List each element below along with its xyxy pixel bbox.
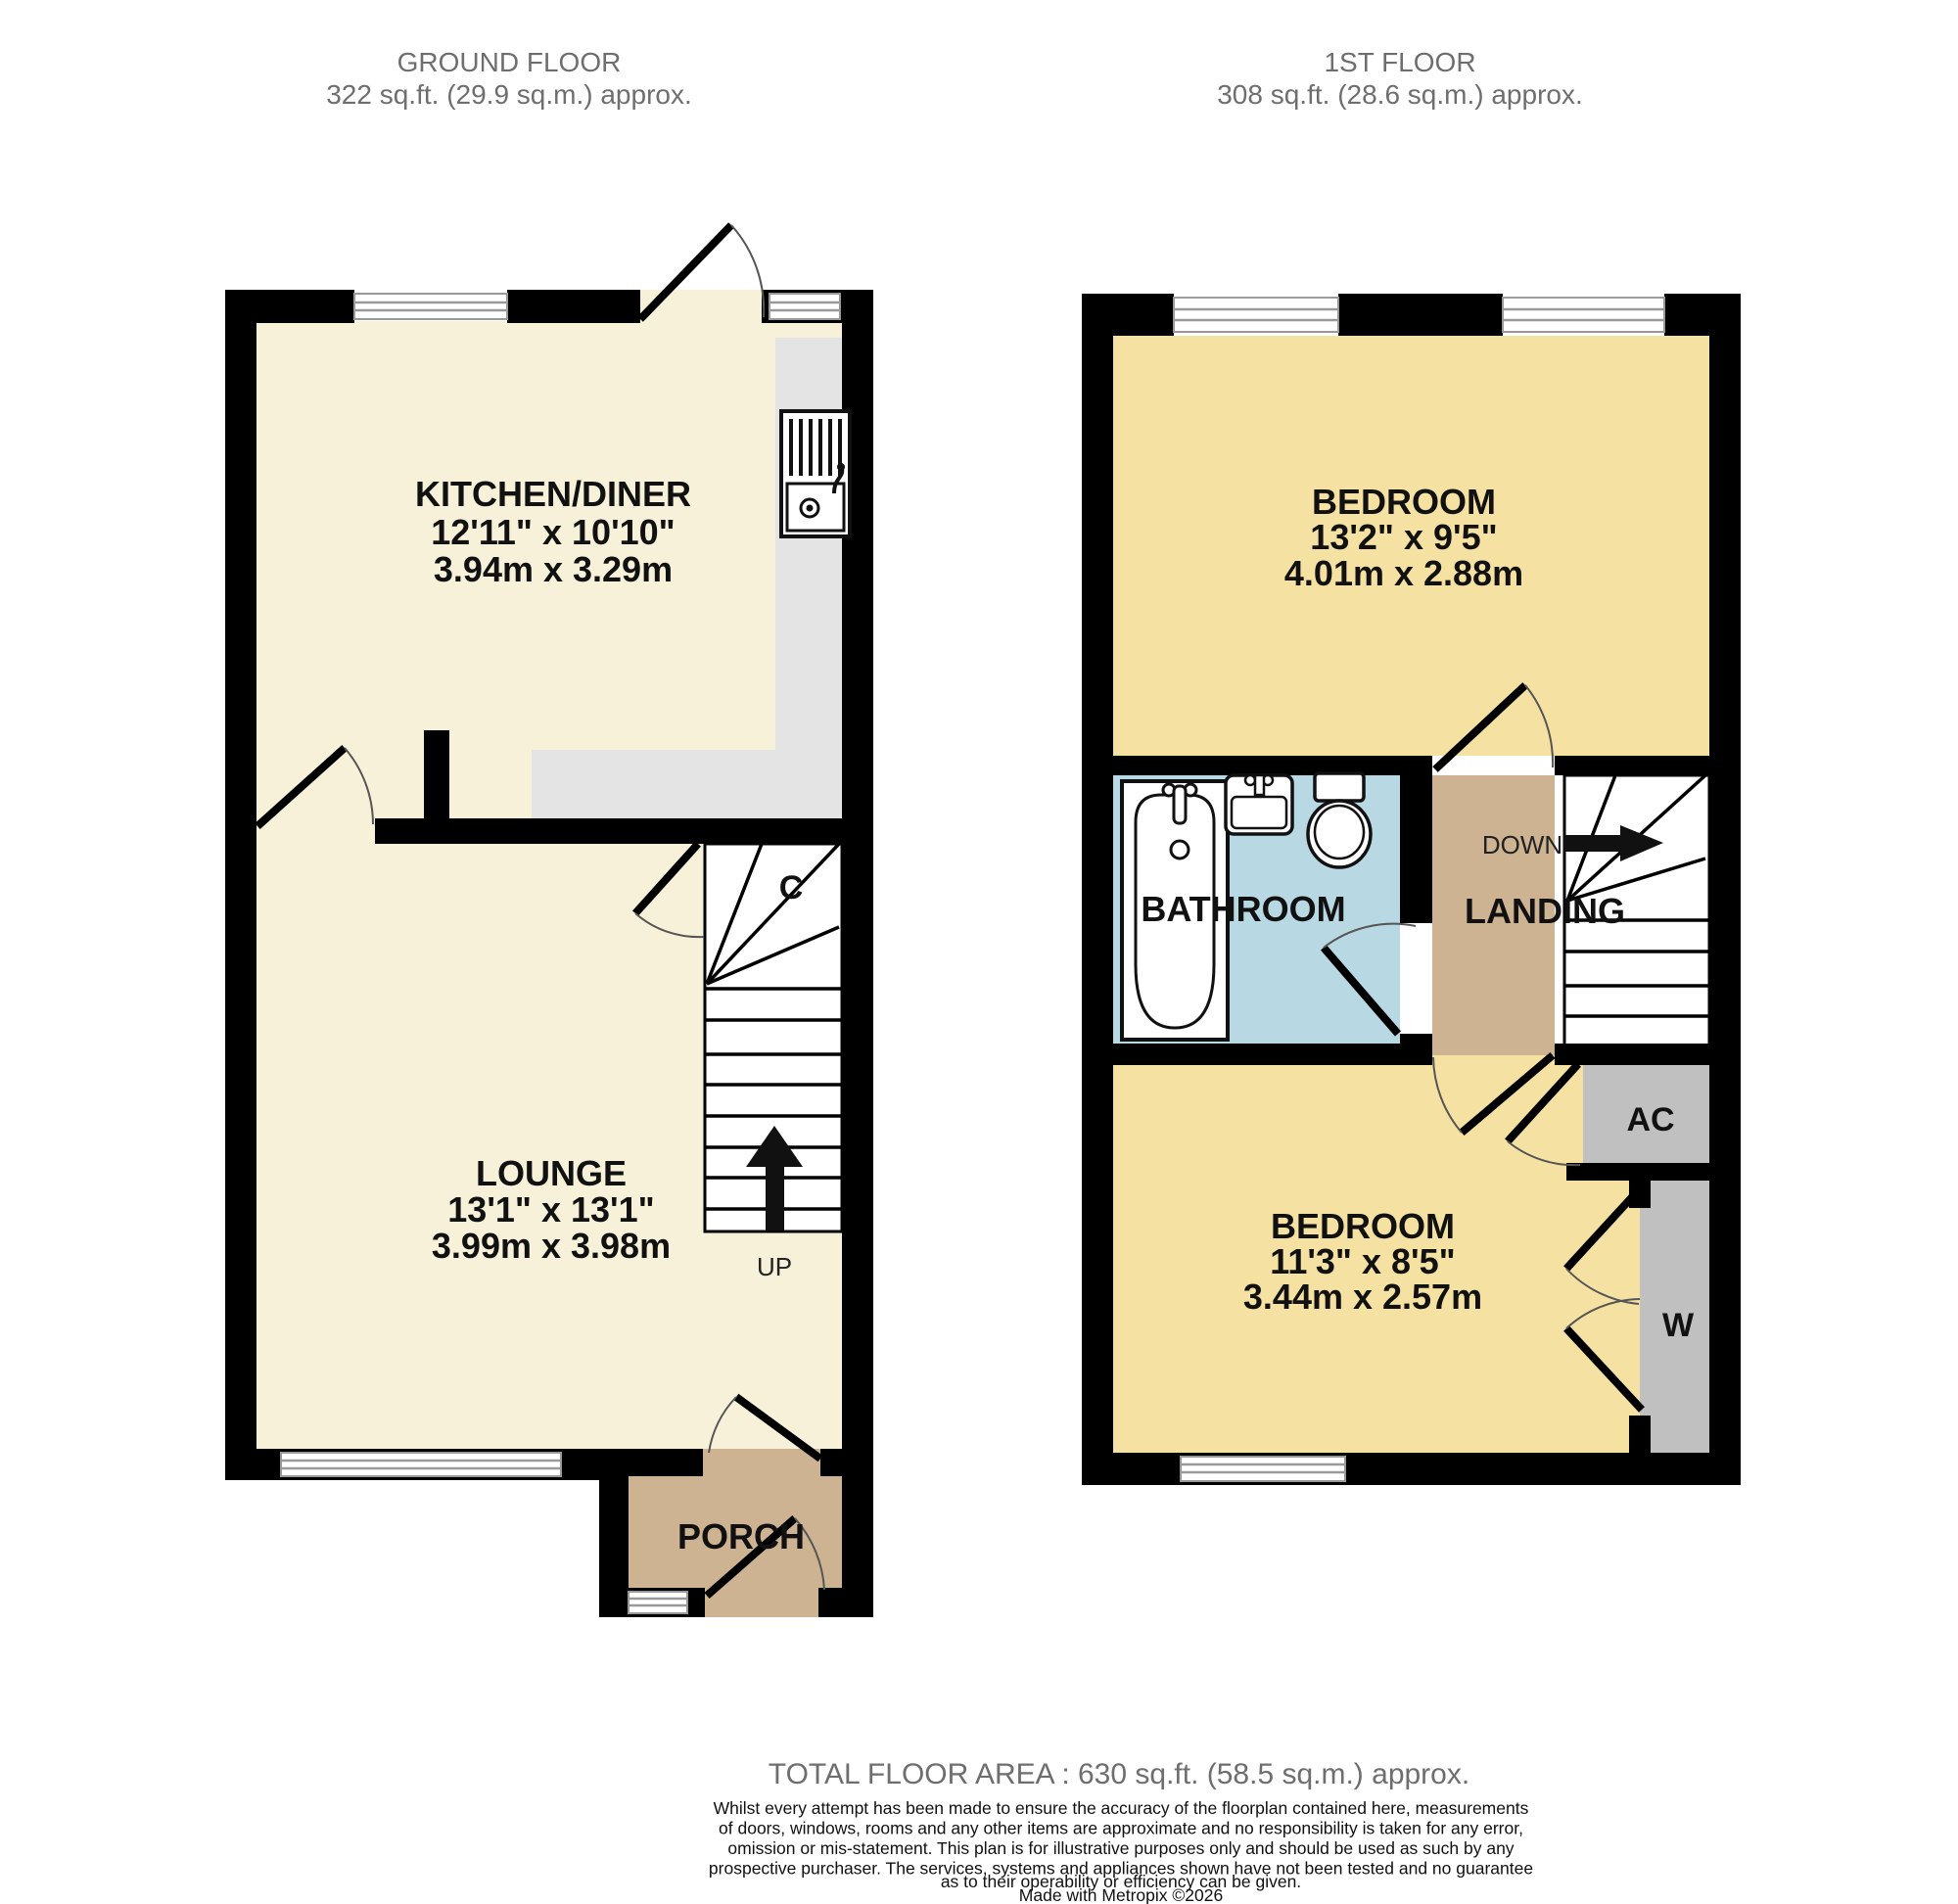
bedroom-1-dims-imperial: 13'2" x 9'5"	[1310, 517, 1497, 557]
window	[1174, 298, 1338, 332]
landing-label: LANDING	[1465, 891, 1625, 931]
lounge-dims-metric: 3.99m x 3.98m	[432, 1226, 671, 1266]
bedroom-1-label: BEDROOM	[1312, 482, 1496, 522]
wall	[1082, 294, 1113, 1485]
wall	[629, 1449, 703, 1476]
disclaimer-line: omission or mis-statement. This plan is …	[727, 1838, 1514, 1858]
bedroom-1-dims-metric: 4.01m x 2.88m	[1284, 553, 1523, 593]
first-floor-plan: BEDROOM 13'2" x 9'5" 4.01m x 2.88m BATHR…	[1082, 294, 1741, 1485]
footer: TOTAL FLOOR AREA : 630 sq.ft. (58.5 sq.m…	[709, 1758, 1533, 1904]
window	[1181, 1457, 1345, 1481]
bedroom-2-dims-imperial: 11'3" x 8'5"	[1270, 1241, 1455, 1281]
window	[629, 1592, 687, 1613]
wall	[1629, 1416, 1651, 1453]
total-floor-area: TOTAL FLOOR AREA : 630 sq.ft. (58.5 sq.m…	[769, 1758, 1469, 1790]
porch-label: PORCH	[677, 1516, 805, 1556]
wall	[1555, 756, 1709, 775]
floorplan-page: GROUND FLOOR 322 sq.ft. (29.9 sq.m.) app…	[0, 0, 1958, 1904]
stairs-up-label: UP	[757, 1252, 792, 1281]
disclaimer-line: of doors, windows, rooms and any other i…	[719, 1819, 1523, 1838]
wall	[1709, 294, 1741, 1485]
wardrobe-label: W	[1662, 1307, 1695, 1344]
wall	[1113, 1044, 1432, 1065]
window	[769, 294, 840, 319]
wall	[1555, 1044, 1709, 1065]
ground-floor-plan: KITCHEN/DINER 12'11" x 10'10" 3.94m x 3.…	[225, 225, 873, 1617]
porch-door-opening	[705, 1588, 818, 1617]
kitchen-counter	[532, 750, 842, 818]
wall	[820, 1449, 844, 1476]
airing-cupboard-label: AC	[1626, 1101, 1674, 1138]
kitchen-diner-dims-metric: 3.94m x 3.29m	[434, 549, 673, 589]
wall	[375, 818, 873, 844]
wall	[1338, 294, 1503, 336]
wall	[507, 290, 640, 323]
staircase-up	[705, 844, 842, 1231]
wall	[1113, 756, 1432, 775]
stairs-down-label: DOWN	[1482, 830, 1562, 859]
ground-floor-area: 322 sq.ft. (29.9 sq.m.) approx.	[326, 79, 692, 110]
washbasin-icon	[1226, 775, 1292, 834]
credit-line: Made with Metropix ©2026	[1019, 1885, 1223, 1904]
disclaimer-line: Whilst every attempt has been made to en…	[714, 1798, 1529, 1818]
plan-headers: GROUND FLOOR 322 sq.ft. (29.9 sq.m.) app…	[326, 47, 1583, 110]
bedroom-2-label: BEDROOM	[1271, 1206, 1455, 1246]
floorplan-canvas: GROUND FLOOR 322 sq.ft. (29.9 sq.m.) app…	[0, 0, 1958, 1904]
cupboard-label: C	[779, 869, 804, 906]
window	[354, 294, 507, 319]
toilet-icon	[1308, 773, 1371, 867]
wall	[1400, 775, 1432, 923]
kitchen-diner-dims-imperial: 12'11" x 10'10"	[431, 512, 675, 552]
wall	[1566, 1163, 1709, 1181]
first-floor-title: 1ST FLOOR	[1324, 47, 1475, 77]
kitchen-diner-label: KITCHEN/DINER	[415, 474, 691, 514]
ground-floor-title: GROUND FLOOR	[397, 47, 622, 77]
bathroom-label: BATHROOM	[1141, 889, 1345, 929]
wall	[225, 290, 256, 1480]
wall	[424, 730, 449, 818]
window	[281, 1453, 561, 1476]
lounge-dims-imperial: 13'1" x 13'1"	[447, 1189, 654, 1230]
window	[1503, 298, 1664, 332]
disclaimer: Whilst every attempt has been made to en…	[709, 1798, 1533, 1904]
wall	[818, 1588, 873, 1617]
bedroom-2-dims-metric: 3.44m x 2.57m	[1243, 1277, 1482, 1317]
first-floor-area: 308 sq.ft. (28.6 sq.m.) approx.	[1217, 79, 1583, 110]
kitchen-sink-icon	[781, 411, 850, 536]
lounge-label: LOUNGE	[476, 1153, 627, 1193]
